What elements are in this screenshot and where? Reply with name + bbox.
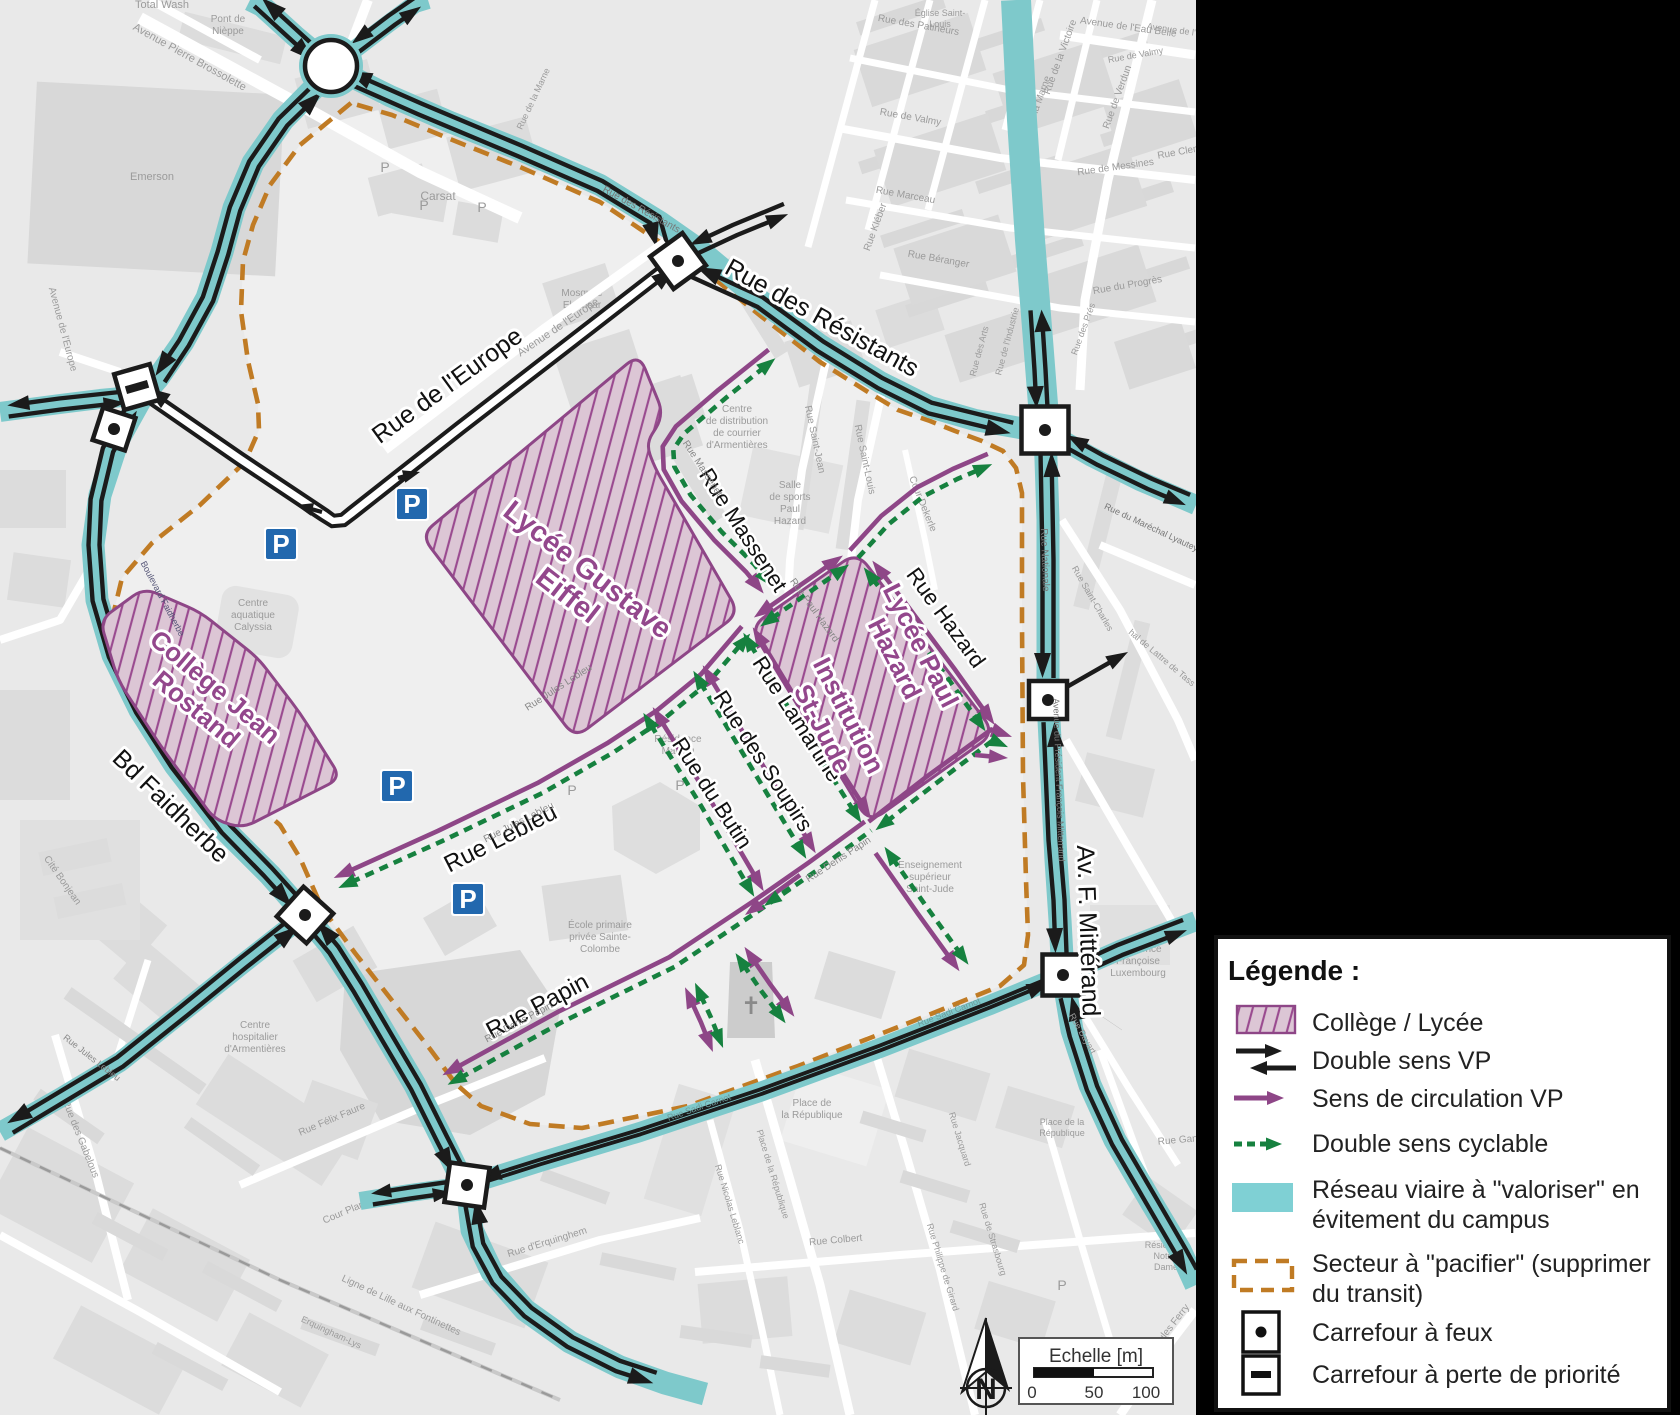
svg-text:P: P	[388, 771, 405, 801]
svg-text:100: 100	[1132, 1383, 1160, 1402]
svg-text:P: P	[477, 199, 486, 215]
svg-text:Légende :: Légende :	[1228, 955, 1360, 986]
svg-text:Total Wash: Total Wash	[135, 0, 189, 11]
svg-text:Rue Nationale: Rue Nationale	[1038, 528, 1051, 592]
svg-text:Emerson: Emerson	[130, 171, 174, 183]
svg-text:d'Armentières: d'Armentières	[224, 1044, 285, 1055]
svg-text:Double sens VP: Double sens VP	[1312, 1047, 1491, 1075]
svg-text:Sens de circulation VP: Sens de circulation VP	[1312, 1085, 1564, 1113]
svg-text:Colombe: Colombe	[580, 944, 620, 955]
svg-text:Nièppe: Nièppe	[212, 26, 244, 37]
svg-text:Calyssia: Calyssia	[234, 622, 272, 633]
svg-text:Echelle [m]: Echelle [m]	[1049, 1346, 1143, 1367]
svg-text:Av. F. Mittérand: Av. F. Mittérand	[1071, 845, 1105, 1017]
svg-text:P: P	[1057, 1277, 1066, 1293]
svg-text:Centre: Centre	[722, 404, 752, 415]
svg-text:Hazard: Hazard	[774, 516, 806, 527]
svg-text:P: P	[419, 197, 428, 213]
svg-text:Carrefour à feux: Carrefour à feux	[1312, 1319, 1493, 1347]
svg-text:50: 50	[1085, 1383, 1104, 1402]
svg-text:Enseignement: Enseignement	[898, 860, 962, 871]
svg-text:Carrefour à perte de priorité: Carrefour à perte de priorité	[1312, 1361, 1620, 1389]
svg-text:Paul: Paul	[780, 504, 800, 515]
svg-text:privée Sainte-: privée Sainte-	[569, 932, 631, 943]
svg-text:École primaire: École primaire	[568, 918, 632, 931]
svg-text:aquatique: aquatique	[231, 610, 275, 621]
svg-text:de courrier: de courrier	[713, 428, 761, 439]
svg-text:Double sens cyclable: Double sens cyclable	[1312, 1130, 1548, 1158]
svg-text:de distribution: de distribution	[706, 416, 768, 427]
svg-text:Centre: Centre	[238, 598, 268, 609]
svg-text:hospitalier: hospitalier	[232, 1032, 278, 1043]
svg-text:0: 0	[1027, 1383, 1036, 1402]
svg-text:N: N	[975, 1373, 997, 1406]
svg-text:évitement du campus: évitement du campus	[1312, 1206, 1550, 1234]
svg-text:Secteur à "pacifier" (supprime: Secteur à "pacifier" (supprimer	[1312, 1250, 1651, 1278]
svg-text:Collège / Lycée: Collège / Lycée	[1312, 1009, 1483, 1037]
svg-text:P: P	[272, 529, 289, 559]
svg-text:de sports: de sports	[769, 492, 810, 503]
svg-text:Salle: Salle	[779, 480, 802, 491]
svg-text:du transit): du transit)	[1312, 1280, 1423, 1308]
svg-text:Église Saint-: Église Saint-	[915, 8, 966, 18]
svg-text:✝: ✝	[741, 993, 761, 1020]
svg-text:Place de: Place de	[793, 1098, 832, 1109]
svg-text:la République: la République	[781, 1110, 843, 1121]
svg-text:Place de la: Place de la	[1040, 1117, 1085, 1127]
svg-text:P: P	[380, 159, 389, 175]
svg-text:P: P	[459, 884, 476, 914]
svg-text:Louis: Louis	[929, 19, 951, 29]
svg-text:Centre: Centre	[240, 1020, 270, 1031]
svg-text:P: P	[567, 782, 576, 798]
svg-text:Luxembourg: Luxembourg	[1110, 968, 1166, 979]
svg-text:République: République	[1039, 1128, 1085, 1138]
svg-text:supérieur: supérieur	[909, 872, 951, 883]
svg-text:Réseau viaire à "valoriser" en: Réseau viaire à "valoriser" en	[1312, 1176, 1640, 1204]
svg-text:d'Armentières: d'Armentières	[706, 440, 767, 451]
svg-text:P: P	[403, 489, 420, 519]
svg-text:Pont de: Pont de	[211, 14, 246, 25]
